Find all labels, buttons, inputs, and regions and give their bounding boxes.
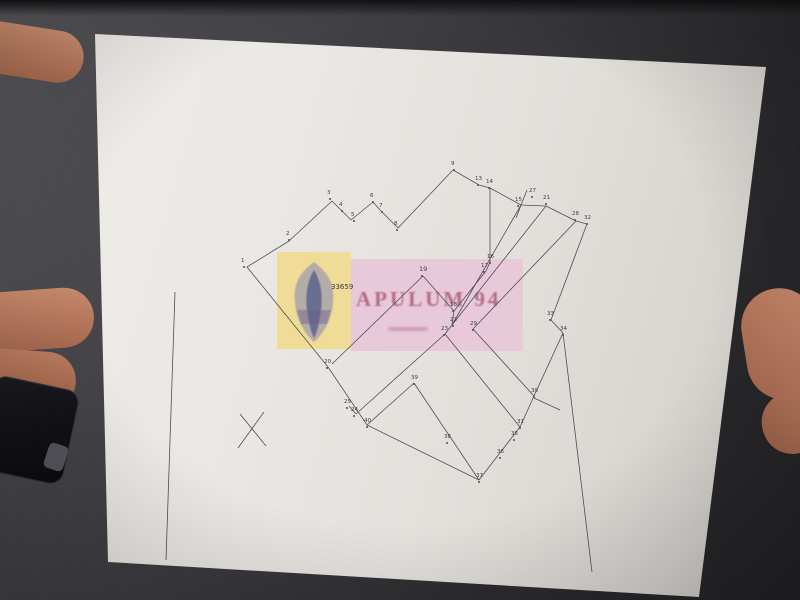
coat-of-arms-icon (283, 258, 345, 346)
thumb-right (736, 283, 800, 406)
watermark-subtext-smudge (388, 327, 428, 331)
finger-right-2 (753, 384, 800, 463)
apulum-watermark-text: APULUM 94 (356, 288, 524, 310)
photo-scene: APULUM 94 123456789131427152128321617191… (0, 0, 800, 600)
car-key-fob (0, 374, 81, 486)
finger-mid-left (0, 286, 96, 355)
